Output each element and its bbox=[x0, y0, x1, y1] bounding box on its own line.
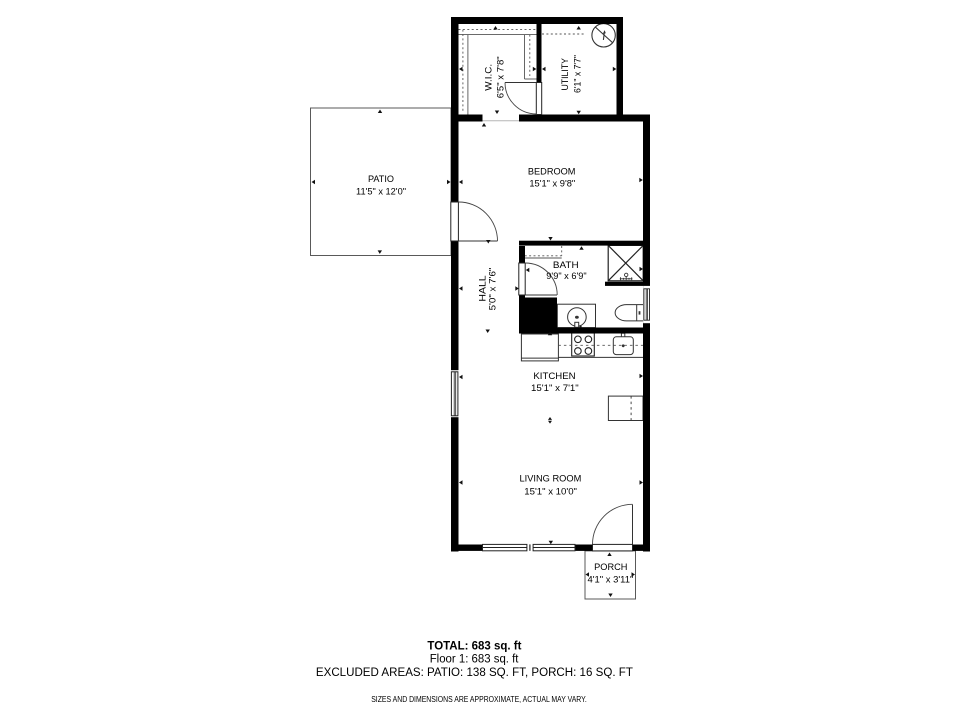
svg-text:W.I.C.: W.I.C. bbox=[484, 64, 494, 91]
svg-text:Floor 1: 683 sq. ft: Floor 1: 683 sq. ft bbox=[430, 653, 520, 665]
svg-text:5'0" x 7'6": 5'0" x 7'6" bbox=[488, 268, 498, 311]
svg-text:BATH: BATH bbox=[553, 260, 579, 270]
svg-text:6'5" x 7'8": 6'5" x 7'8" bbox=[496, 56, 506, 98]
svg-text:15'1" x 9'8": 15'1" x 9'8" bbox=[529, 179, 575, 189]
svg-text:KITCHEN: KITCHEN bbox=[533, 371, 575, 381]
svg-text:EXCLUDED AREAS: PATIO: 138 SQ.: EXCLUDED AREAS: PATIO: 138 SQ. FT, PORCH… bbox=[316, 667, 633, 679]
svg-text:PATIO: PATIO bbox=[368, 174, 394, 184]
svg-text:UTILITY: UTILITY bbox=[560, 58, 570, 91]
svg-text:LIVING ROOM: LIVING ROOM bbox=[520, 474, 582, 484]
svg-text:PORCH: PORCH bbox=[594, 562, 627, 572]
svg-text:TOTAL: 683 sq. ft: TOTAL: 683 sq. ft bbox=[427, 641, 521, 653]
svg-text:BEDROOM: BEDROOM bbox=[528, 167, 576, 177]
svg-text:4'1" x 3'11": 4'1" x 3'11" bbox=[588, 575, 634, 585]
svg-text:15'1" x 10'0": 15'1" x 10'0" bbox=[524, 487, 577, 497]
svg-text:6'1" x 7'7": 6'1" x 7'7" bbox=[573, 55, 583, 93]
svg-text:HALL: HALL bbox=[478, 275, 488, 301]
svg-text:9'9" x 6'9": 9'9" x 6'9" bbox=[546, 271, 586, 281]
svg-text:SIZES AND DIMENSIONS ARE APPRO: SIZES AND DIMENSIONS ARE APPROXIMATE, AC… bbox=[371, 695, 587, 704]
svg-text:15'1" x 7'1": 15'1" x 7'1" bbox=[531, 383, 579, 393]
svg-text:11'5" x 12'0": 11'5" x 12'0" bbox=[356, 186, 406, 196]
